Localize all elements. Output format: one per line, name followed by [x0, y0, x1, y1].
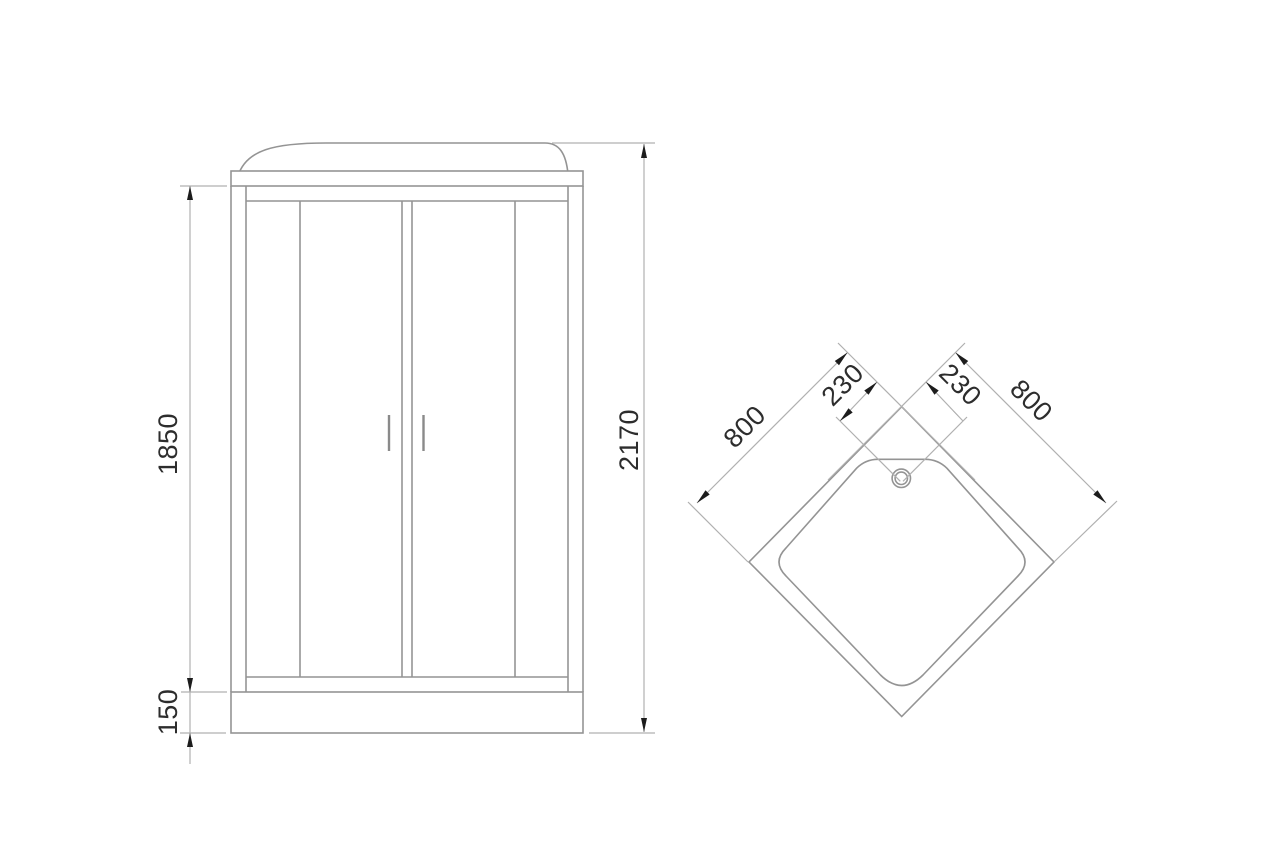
arrow-1850-top — [187, 186, 193, 200]
dim-label-1850: 1850 — [153, 413, 183, 475]
front-view-dimensions: 1850 150 2170 — [153, 143, 655, 764]
dim-label-230-left: 230 — [816, 358, 870, 412]
dim-line-800-left — [697, 353, 848, 504]
front-view — [231, 143, 583, 733]
top-view — [749, 407, 1054, 717]
dim-line-800-right — [956, 353, 1107, 504]
ext-line-drain-right — [903, 417, 967, 481]
arrow-2170-top — [641, 144, 647, 158]
tray-outer-outline — [749, 407, 1054, 717]
technical-drawing: 1850 150 2170 800 — [0, 0, 1280, 853]
dim-label-230-right: 230 — [933, 358, 987, 412]
arrow-150-bottom — [187, 733, 193, 747]
ext-line-drain-left — [836, 417, 900, 481]
arrow-1850-bottom — [187, 678, 193, 692]
dim-label-800-right: 800 — [1004, 374, 1058, 428]
dim-label-2170: 2170 — [614, 409, 644, 471]
arrow-2170-bottom — [641, 718, 647, 732]
dim-label-800-left: 800 — [718, 400, 772, 454]
dim-label-150: 150 — [153, 689, 183, 736]
top-frame-bar — [231, 171, 583, 186]
ext-line-side-right — [1054, 501, 1117, 562]
top-view-dimensions: 800 800 230 230 — [688, 343, 1117, 562]
tray-base — [231, 692, 583, 733]
ext-line-side-left — [688, 502, 748, 562]
drawing-canvas: 1850 150 2170 800 — [0, 0, 1280, 853]
